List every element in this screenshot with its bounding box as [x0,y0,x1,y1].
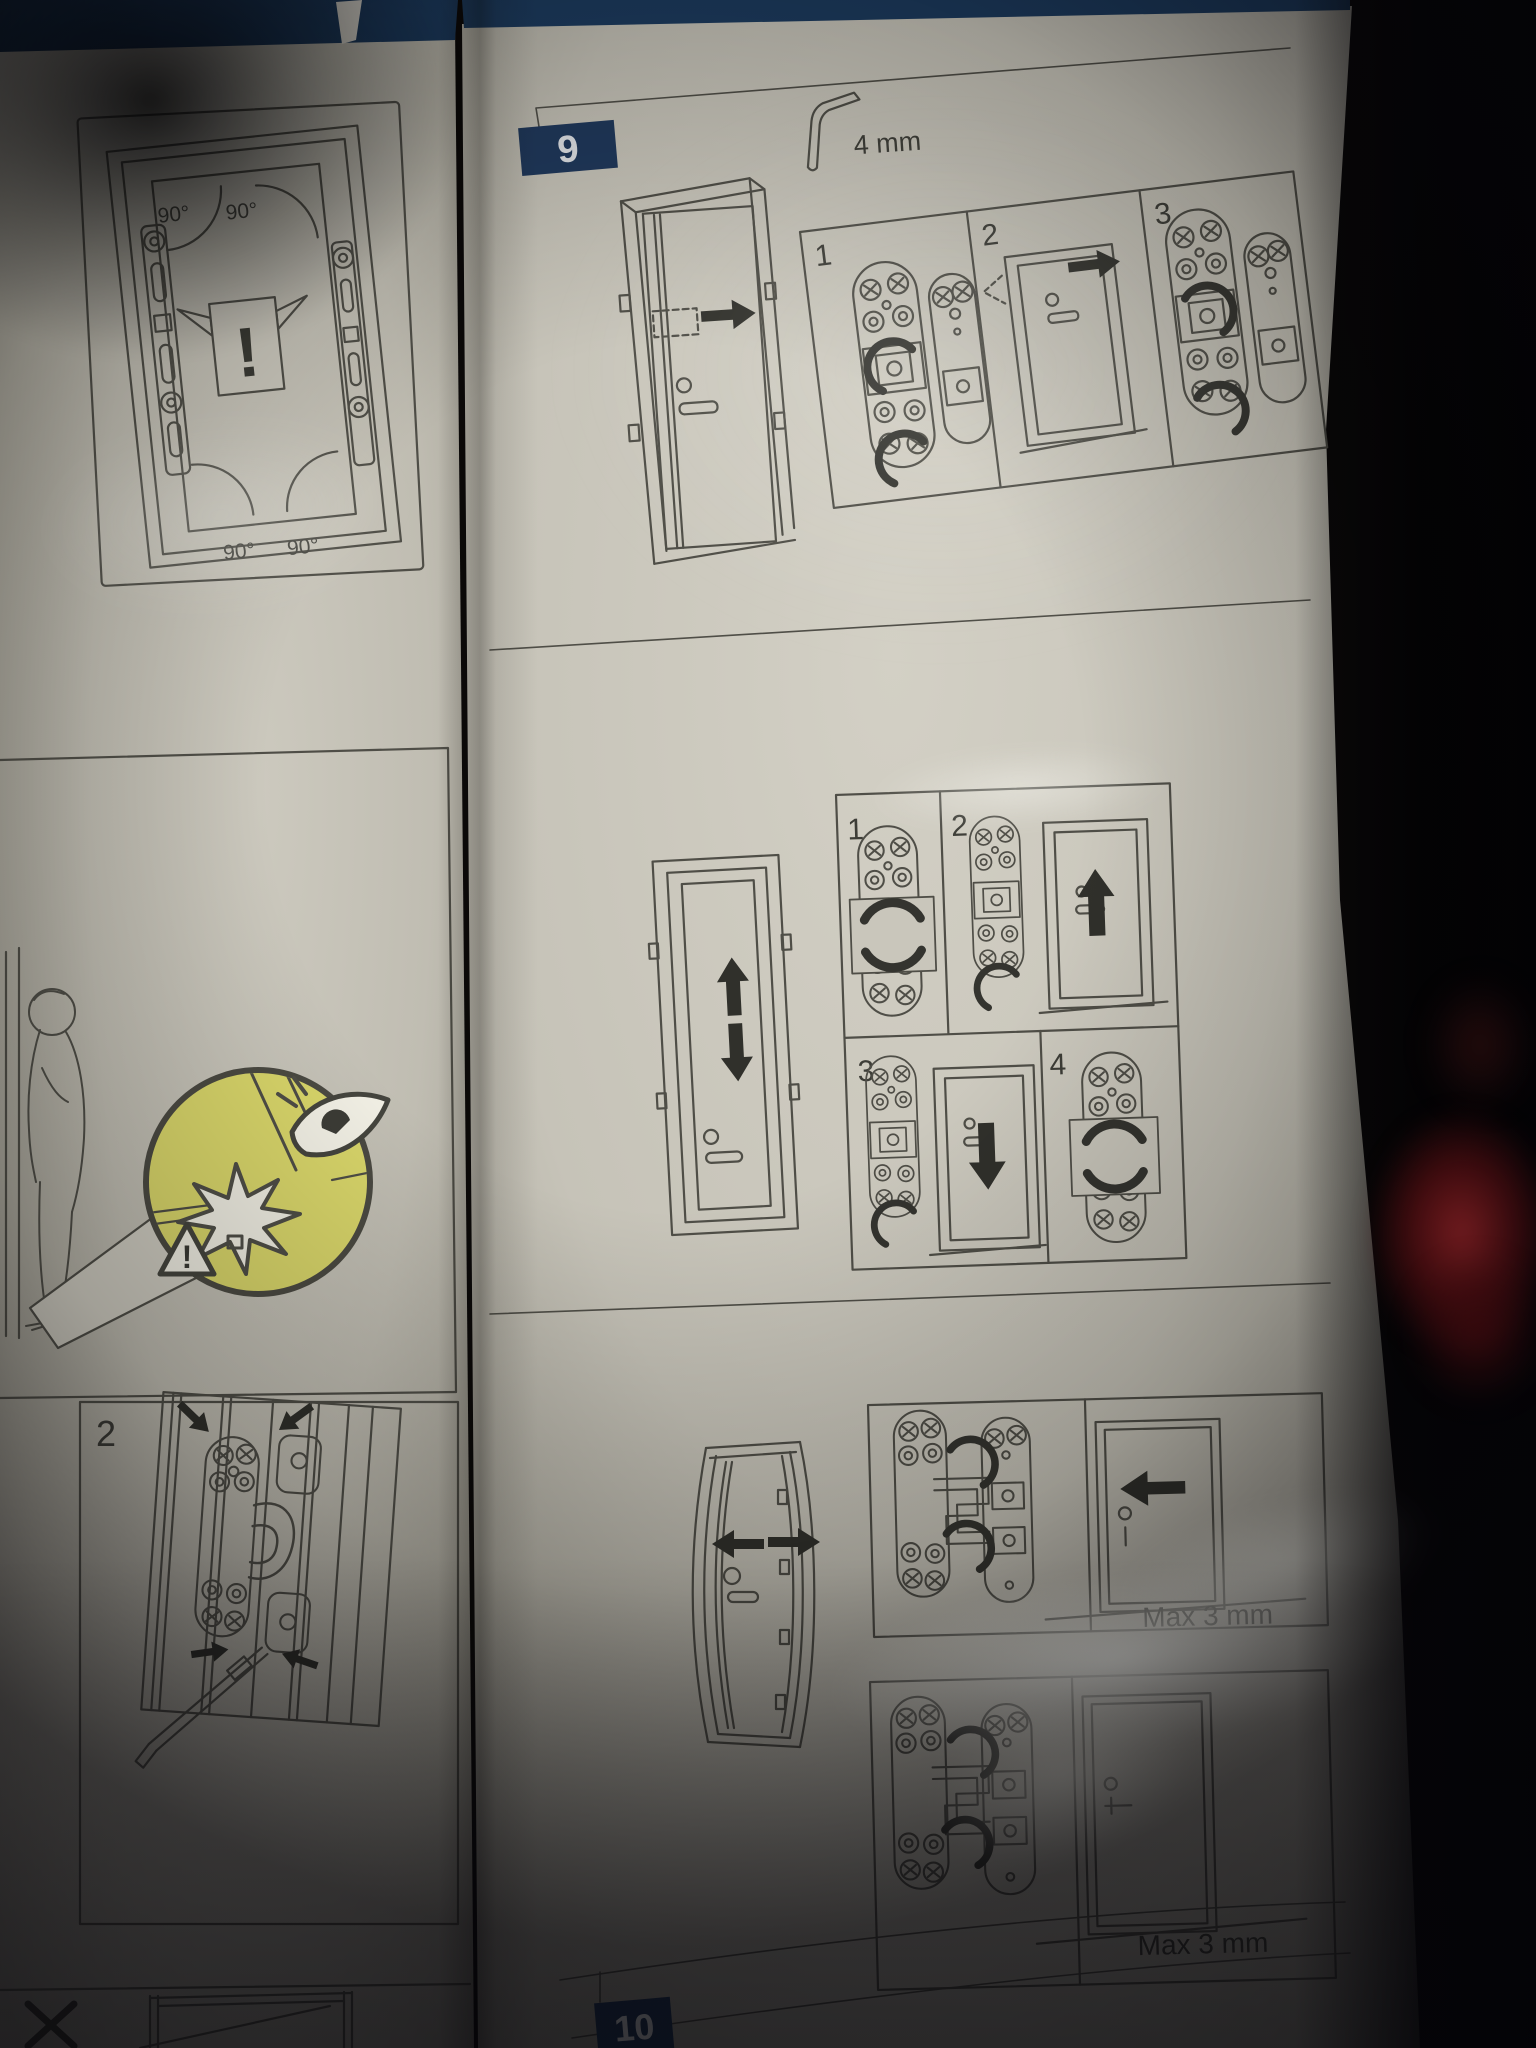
angle-label-top-right: 90° [225,199,259,225]
panel-number: 2 [951,809,969,843]
max-gap-label: Max 3 mm [1142,1599,1273,1633]
angle-label-bottom-left: 90° [222,539,256,565]
allen-key-size-label: 4 mm [853,126,922,161]
triangle-exclamation: ! [182,1239,193,1275]
angle-label-bottom-right: 90° [286,534,320,560]
angle-label-top-left: 90° [157,202,191,228]
step-10-number: 10 [613,2005,656,2048]
panel-number: 2 [96,1413,116,1454]
leaflet-artwork: ! 90° 90° 90° 90° [0,0,1536,2048]
max-gap-label: Max 3 mm [1137,1927,1268,1961]
step-10-badge: 10 [594,1997,674,2048]
step-9-number: 9 [556,128,581,172]
step-9-badge: 9 [518,120,618,176]
photo-of-instruction-leaflet: ! 90° 90° 90° 90° [0,0,1536,2048]
panel-number: 4 [1049,1048,1067,1082]
